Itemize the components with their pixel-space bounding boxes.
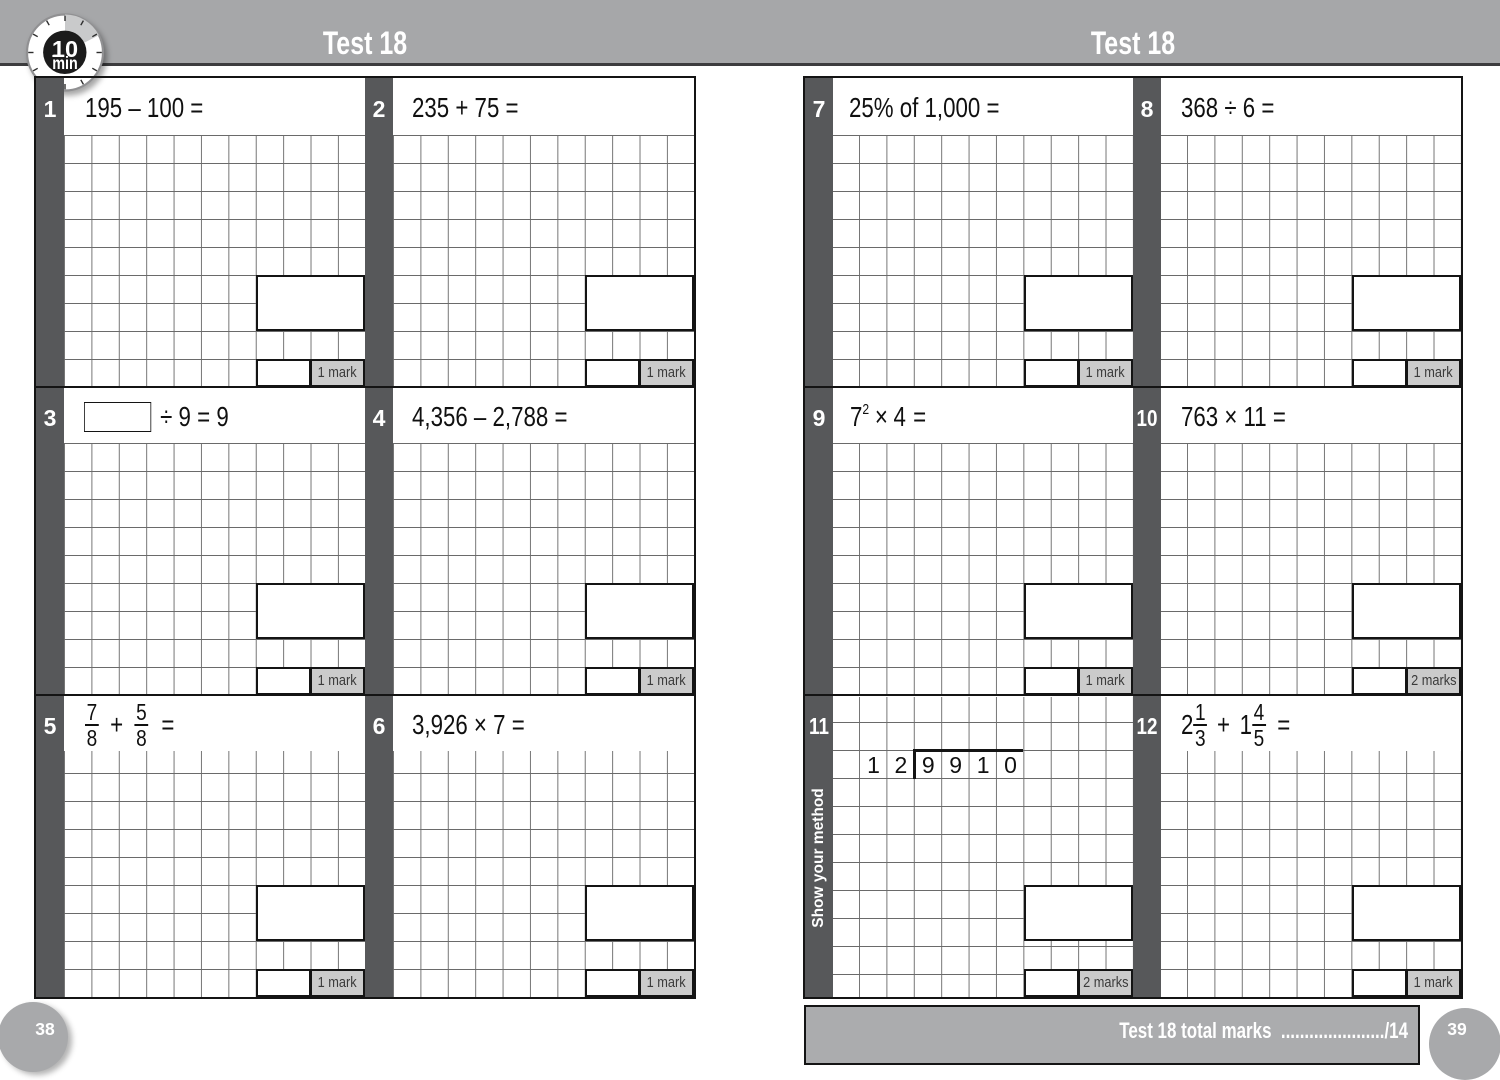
svg-text:min: min [52, 53, 78, 73]
